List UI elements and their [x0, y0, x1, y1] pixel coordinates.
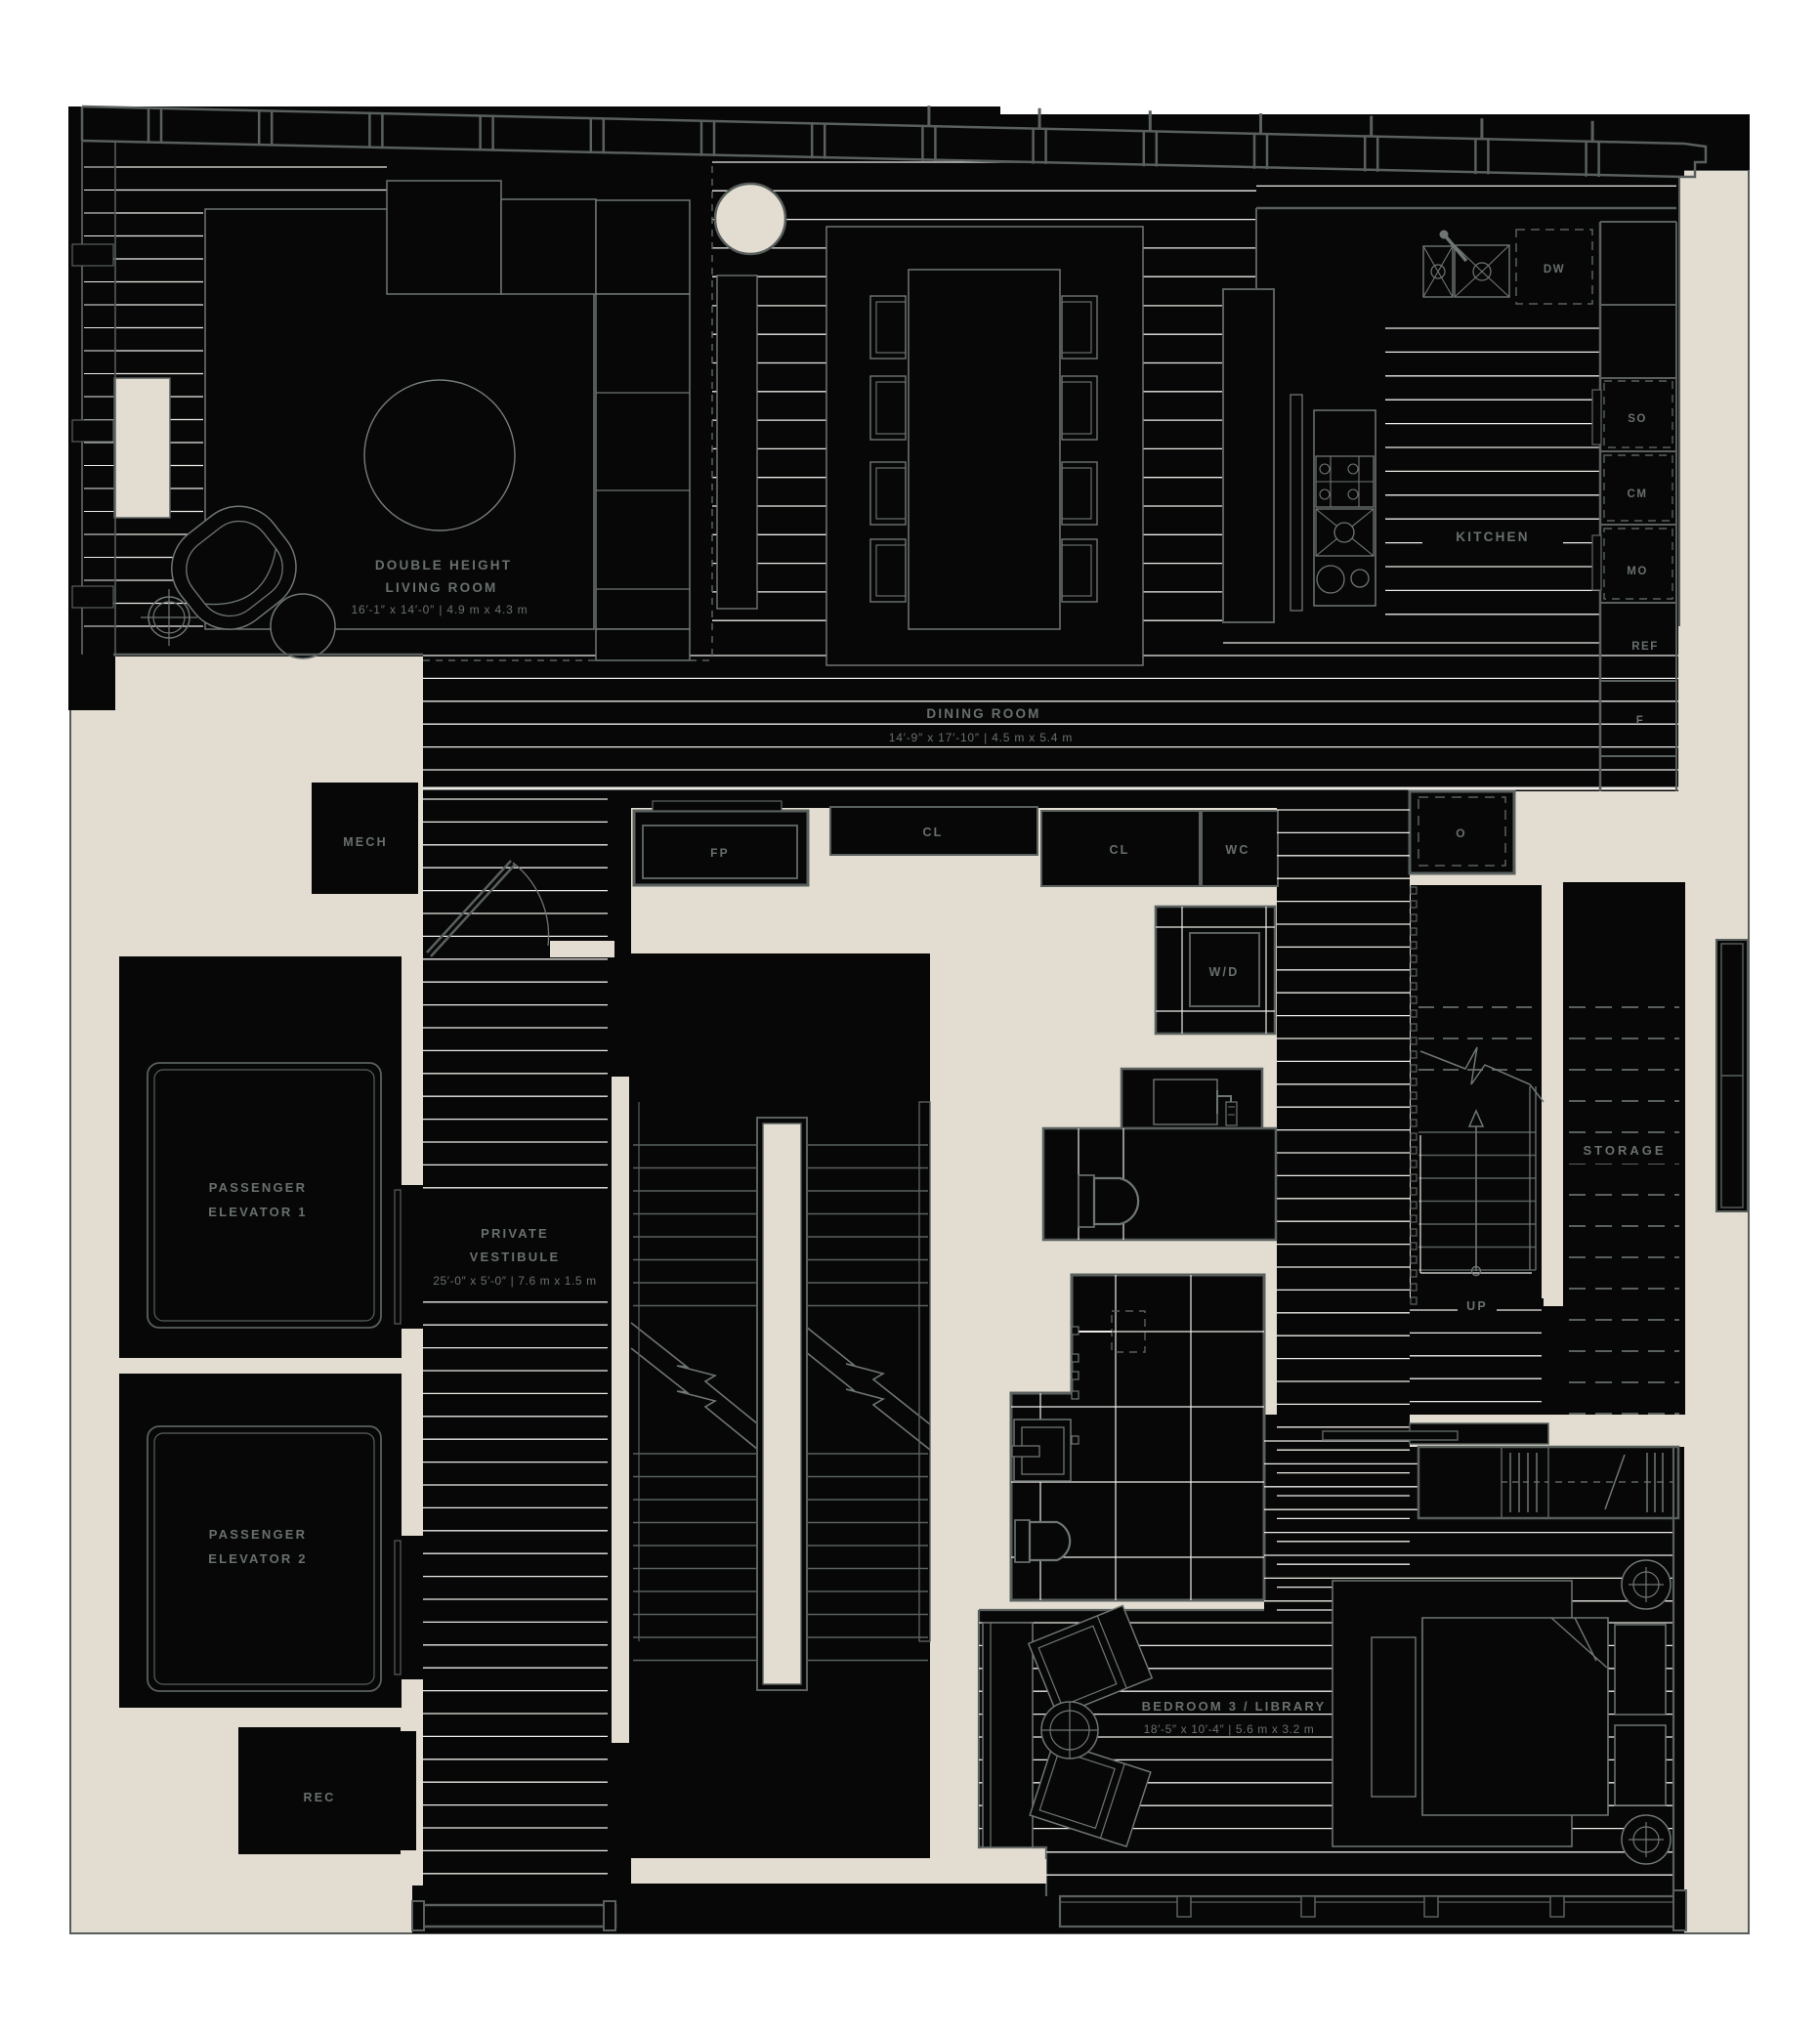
svg-text:18′-5″ x 10′-4″ | 5.6 m x 3.: 18′-5″ x 10′-4″ | 5.6 m x 3.2 m	[1144, 1722, 1315, 1736]
svg-text:MECH: MECH	[343, 835, 388, 849]
svg-text:WC: WC	[1225, 843, 1249, 857]
svg-text:BEDROOM 3 / LIBRARY: BEDROOM 3 / LIBRARY	[1142, 1699, 1327, 1714]
svg-text:REF: REF	[1631, 641, 1659, 653]
svg-text:DW: DW	[1544, 264, 1565, 275]
svg-text:REC: REC	[304, 1791, 336, 1804]
svg-text:F: F	[1636, 715, 1645, 727]
svg-text:FP: FP	[710, 846, 730, 860]
svg-text:ELEVATOR 1: ELEVATOR 1	[208, 1205, 307, 1219]
svg-text:CL: CL	[922, 826, 943, 839]
svg-text:VESTIBULE: VESTIBULE	[470, 1250, 561, 1264]
svg-text:DOUBLE HEIGHT: DOUBLE HEIGHT	[375, 558, 512, 572]
svg-text:UP: UP	[1466, 1299, 1488, 1313]
svg-text:PASSENGER: PASSENGER	[209, 1180, 307, 1195]
svg-text:O: O	[1456, 826, 1467, 840]
svg-text:PASSENGER: PASSENGER	[209, 1527, 307, 1542]
svg-text:W/D: W/D	[1209, 965, 1240, 979]
svg-text:STORAGE: STORAGE	[1583, 1143, 1666, 1158]
svg-text:DINING ROOM: DINING ROOM	[926, 706, 1040, 721]
svg-text:KITCHEN: KITCHEN	[1456, 530, 1529, 544]
svg-text:14′-9″ x 17′-10″ | 4.5 m x 5: 14′-9″ x 17′-10″ | 4.5 m x 5.4 m	[889, 731, 1073, 744]
svg-text:CM: CM	[1628, 488, 1648, 500]
svg-text:LIVING ROOM: LIVING ROOM	[386, 580, 498, 595]
svg-text:SO: SO	[1628, 413, 1647, 425]
svg-text:PRIVATE: PRIVATE	[481, 1226, 549, 1241]
svg-text:16′-1″ x 14′-0″ | 4.9 m x 4.: 16′-1″ x 14′-0″ | 4.9 m x 4.3 m	[352, 603, 529, 616]
svg-text:25′-0″ x 5′-0″ | 7.6 m x 1.5: 25′-0″ x 5′-0″ | 7.6 m x 1.5 m	[433, 1274, 597, 1288]
svg-text:ELEVATOR 2: ELEVATOR 2	[208, 1551, 307, 1566]
svg-text:MO: MO	[1627, 566, 1648, 577]
svg-text:CL: CL	[1109, 843, 1129, 857]
